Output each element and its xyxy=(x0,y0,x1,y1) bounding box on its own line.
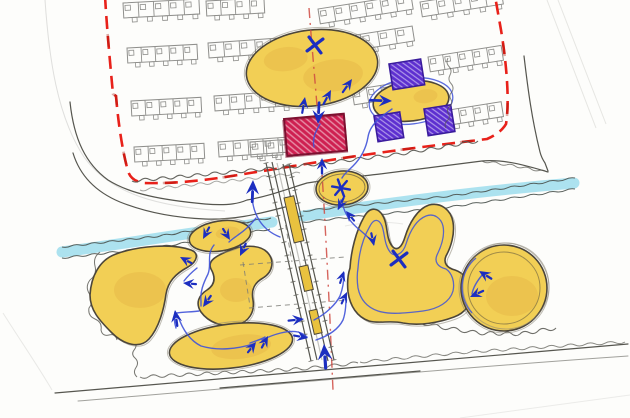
vegetation-squiggle xyxy=(360,342,625,363)
faint-bottomright-line xyxy=(460,395,630,418)
meadow-blob-right xyxy=(348,204,473,326)
road-topright-a xyxy=(547,0,596,128)
avenue-tick xyxy=(296,203,301,204)
housing-row xyxy=(123,0,200,22)
housing-row xyxy=(131,97,202,120)
road-topright-b xyxy=(558,0,606,124)
sketch-page xyxy=(0,0,630,418)
avenue-tick xyxy=(264,162,269,163)
movement-arrow xyxy=(246,180,260,202)
avenue-tick xyxy=(291,281,296,282)
site-plan-sketch-canvas xyxy=(0,0,630,418)
meadow-circle-right xyxy=(459,243,549,333)
avenue-tick xyxy=(323,320,328,321)
avenue-tick xyxy=(273,202,278,203)
road-bottom-a xyxy=(55,344,628,393)
avenue-tick xyxy=(305,242,310,243)
avenue-tick xyxy=(308,255,313,256)
faint-corner-line xyxy=(3,313,52,390)
avenue-tick xyxy=(314,281,319,282)
avenue-tick xyxy=(290,177,295,178)
meadow-ellipse-large xyxy=(240,20,385,116)
avenue-tick xyxy=(311,268,316,269)
movement-arrow xyxy=(336,270,349,285)
flow-line xyxy=(184,268,197,281)
purple-plot-2 xyxy=(374,112,404,142)
avenue-tick xyxy=(317,294,322,295)
housing-row xyxy=(318,0,414,28)
avenue-tick xyxy=(288,268,293,269)
avenue-tick xyxy=(282,242,287,243)
avenue-tick xyxy=(276,215,281,216)
avenue-tick xyxy=(285,255,290,256)
avenue-tick xyxy=(294,294,299,295)
housing-row xyxy=(420,0,504,21)
road-bottom-dark xyxy=(220,371,420,388)
avenue-tick xyxy=(293,190,298,191)
housing-row xyxy=(134,143,205,166)
housing-row xyxy=(428,45,504,76)
avenue-tick xyxy=(297,308,302,309)
avenue-tick xyxy=(270,189,275,190)
housing-row xyxy=(127,44,198,67)
avenue-tick xyxy=(302,229,307,230)
housing-row xyxy=(206,0,265,20)
avenue-tick xyxy=(329,346,334,347)
avenue-tick xyxy=(309,360,314,361)
purple-plot-1 xyxy=(389,59,425,90)
avenue-tick xyxy=(320,307,325,308)
avenue-tick xyxy=(287,163,292,164)
meadow-blob-left xyxy=(90,246,198,346)
road-bottom-b xyxy=(78,356,628,401)
avenue-tick xyxy=(279,228,284,229)
purple-plot-3 xyxy=(424,105,455,136)
edge-right-sketch xyxy=(524,56,548,171)
flow-line xyxy=(177,311,199,313)
avenue-median-strip-3 xyxy=(309,309,322,334)
avenue-tick xyxy=(306,347,311,348)
